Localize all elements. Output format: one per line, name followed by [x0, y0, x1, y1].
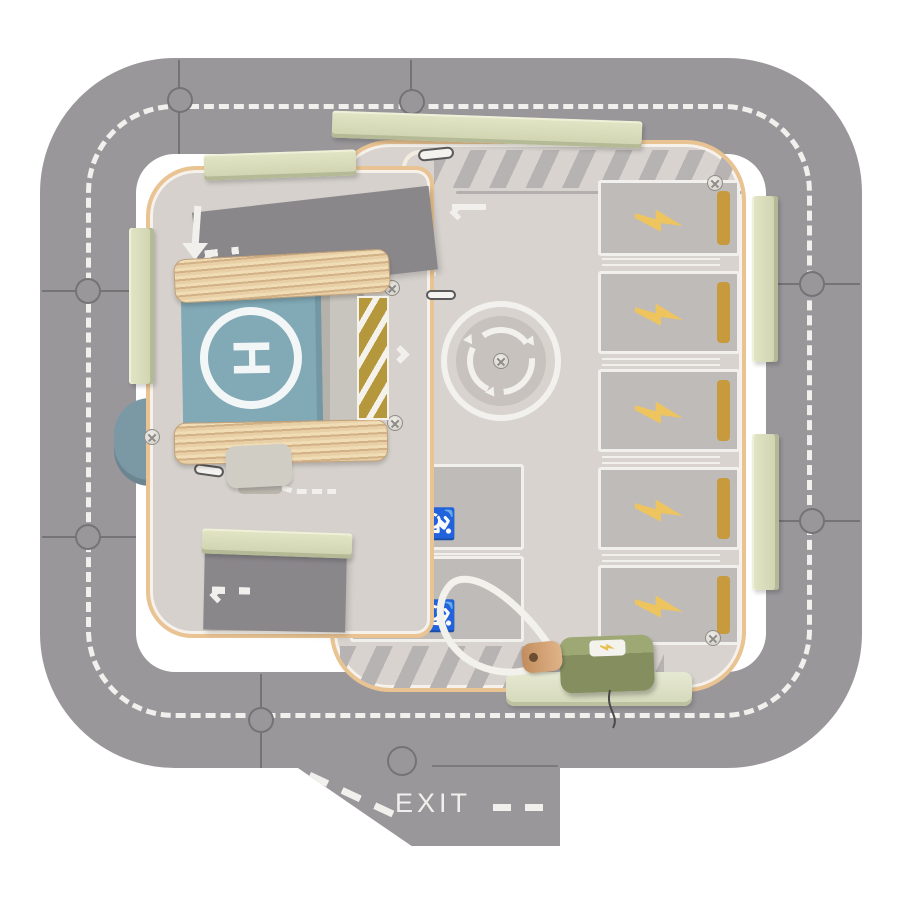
puzzle-knob	[248, 707, 274, 733]
puzzle-knob	[799, 508, 825, 534]
ev-charging-bay	[598, 180, 740, 256]
screw	[493, 353, 509, 369]
bay-divider	[602, 258, 720, 266]
helipad-circle: H	[199, 306, 303, 410]
roundabout-icon	[441, 301, 561, 421]
green-stick-barrier[interactable]	[129, 228, 154, 384]
ramp-markings	[212, 590, 338, 593]
lightning-bolt-icon	[635, 493, 683, 529]
bay-divider	[602, 358, 720, 366]
toy-parking-playset-photo: EXIT	[0, 0, 900, 909]
bay-divider	[602, 456, 720, 464]
green-stick-barrier[interactable]	[202, 528, 353, 558]
charging-strip	[717, 282, 730, 343]
helipad-h-label: H	[221, 339, 282, 378]
puzzle-knob	[799, 271, 825, 297]
ramp-markings	[205, 228, 426, 253]
exit-label: EXIT	[395, 788, 471, 819]
ev-charging-bay	[598, 467, 740, 550]
charging-strip	[717, 576, 730, 634]
peg-hole	[529, 652, 539, 662]
green-stick-barrier[interactable]	[752, 196, 778, 362]
screw	[144, 429, 160, 445]
screw	[387, 415, 403, 431]
exit-puzzle-knob	[387, 746, 417, 776]
green-stick-barrier[interactable]	[752, 434, 779, 590]
roller-knob[interactable]	[225, 443, 293, 488]
screw	[707, 175, 723, 191]
lower-ramp	[203, 550, 347, 633]
exit-diagonal-dashes	[308, 772, 396, 818]
puzzle-knob	[75, 524, 101, 550]
hazard-stripe-strip	[357, 296, 389, 420]
screw	[705, 630, 721, 646]
arrowhead	[485, 387, 495, 398]
ev-charging-bay	[598, 271, 740, 354]
exit-piece-seam	[432, 765, 558, 767]
exit-ramp-piece: EXIT	[295, 766, 560, 846]
lightning-bolt-icon	[635, 203, 683, 239]
puzzle-knob	[399, 89, 425, 115]
lightning-bolt-icon	[635, 297, 683, 333]
helipad-block[interactable]: H	[181, 286, 324, 433]
puzzle-knob	[75, 278, 101, 304]
charging-strip	[717, 478, 730, 539]
exit-dashes	[493, 804, 551, 811]
wooden-plug-peg[interactable]	[521, 640, 564, 674]
green-stick-barrier[interactable]	[204, 149, 357, 180]
arrow-tail	[452, 204, 486, 210]
ev-charging-bay	[598, 369, 740, 452]
lightning-bolt-icon	[635, 395, 683, 431]
charging-strip	[717, 191, 730, 245]
charging-strip	[717, 380, 730, 441]
wire-staple	[426, 290, 456, 300]
puzzle-knob	[167, 87, 193, 113]
